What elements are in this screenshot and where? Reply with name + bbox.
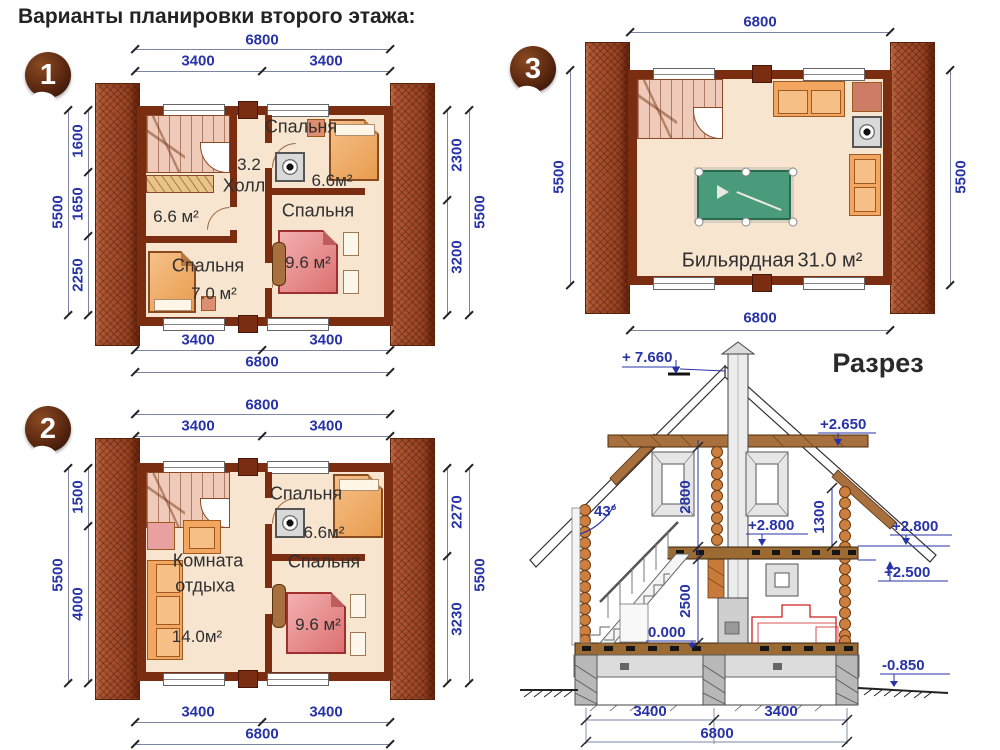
dim-tick (946, 281, 955, 290)
wall-post (752, 274, 772, 292)
dim-tick (386, 368, 395, 377)
room-name: Спальня (282, 201, 354, 222)
dim-tick (84, 311, 93, 320)
room-name: Комната (173, 551, 243, 572)
page-title: Варианты планировки второго этажа: (18, 5, 415, 29)
dim-tick (566, 281, 575, 290)
dim-label: 1500 (70, 480, 87, 513)
dim-line (469, 468, 470, 683)
wall-post (752, 65, 772, 83)
brick-gable-wall (390, 438, 435, 700)
elev-label: +2.500 (884, 564, 930, 581)
cushion (778, 90, 808, 114)
dim-label: 1650 (70, 187, 87, 220)
elev-label: -0.850 (882, 657, 925, 674)
room-name: Спальня (288, 552, 360, 573)
dim-label: 3400 (181, 332, 214, 349)
dim-label: 3400 (309, 418, 342, 435)
dim-tick (465, 679, 474, 688)
stair-winders (638, 80, 677, 138)
dim-label: 1300 (811, 500, 828, 533)
floor-plan-2: 2 6800 3400 3400 5500 1500 4000 2270 323… (35, 398, 500, 750)
armchair (183, 520, 221, 554)
cushion (854, 187, 876, 212)
dim-label: 6800 (245, 354, 278, 371)
partition-wall (265, 288, 272, 317)
pocket (695, 218, 704, 227)
cushion (156, 596, 180, 625)
dim-label: 6800 (245, 726, 278, 743)
dim-tick (465, 311, 474, 320)
dim-line (950, 70, 951, 285)
section-stove (718, 598, 748, 643)
elev-label: +2.650 (820, 416, 866, 433)
armchair (849, 154, 881, 216)
hatched-bench (146, 175, 214, 193)
dim-tick (386, 718, 395, 727)
dim-line (88, 468, 89, 683)
dim-label: 6800 (743, 310, 776, 327)
siding-board (572, 508, 580, 645)
wall-post (238, 670, 258, 688)
dim-line (135, 414, 390, 415)
dim-label: 2270 (449, 495, 466, 528)
window (803, 68, 865, 81)
fireplace-red-outline (752, 605, 838, 643)
wall-post (238, 101, 258, 119)
pillow (339, 479, 379, 491)
wall-niche (766, 564, 798, 596)
plan-2-badge: 2 (25, 406, 71, 452)
cushion (811, 90, 841, 114)
dim-line (88, 110, 89, 315)
dim-tick (886, 326, 895, 335)
door-leaf (272, 584, 286, 628)
dim-label: 5500 (551, 160, 568, 193)
dim-line (135, 372, 390, 373)
dim-label: 3400 (764, 703, 797, 720)
room-area: 3.2 (237, 155, 261, 175)
room-name: Холл (223, 176, 265, 197)
dim-tick (443, 679, 452, 688)
side-table (147, 522, 175, 550)
dim-label: 1600 (70, 124, 87, 157)
dim-tick (386, 410, 395, 419)
elev-label: +2.800 (892, 518, 938, 535)
stove (852, 116, 882, 148)
dim-label: 3400 (633, 703, 666, 720)
window (163, 673, 225, 686)
room-name: Спальня (265, 117, 337, 138)
foundation (574, 655, 859, 705)
cue-line (736, 191, 781, 211)
dim-line (135, 744, 390, 745)
pool-table (697, 170, 791, 220)
dim-label: 5500 (472, 558, 489, 591)
nightstand (343, 232, 359, 256)
elev-label: +2.800 (748, 517, 794, 534)
window (267, 673, 329, 686)
dim-label: 3200 (449, 240, 466, 273)
dim-tick (386, 67, 395, 76)
dim-tick (64, 311, 73, 320)
dim-label: 3400 (181, 53, 214, 70)
cushion (189, 527, 215, 549)
dim-tick (386, 45, 395, 54)
rack-triangle (717, 185, 729, 199)
room-area: 6.6м² (304, 523, 345, 543)
door-leaf (272, 242, 286, 286)
dim-label: 6800 (245, 32, 278, 49)
wall-post (238, 458, 258, 476)
dim-label: 2800 (677, 480, 694, 513)
dim-tick (64, 679, 73, 688)
room-area: 31.0 м² (798, 250, 863, 273)
dim-label: 5500 (953, 160, 970, 193)
pocket (789, 168, 798, 177)
plan-1-badge: 1 (25, 52, 71, 98)
dim-label: 4000 (70, 587, 87, 620)
dim-label: 3400 (309, 704, 342, 721)
partition-wall (265, 168, 272, 263)
brick-gable-wall (890, 42, 935, 314)
dim-label: 6800 (743, 14, 776, 31)
window (267, 318, 329, 331)
room-name: Бильярдная (682, 250, 795, 273)
sofa (773, 81, 845, 117)
dim-tick (84, 679, 93, 688)
elev-label: + 7.660 (622, 349, 672, 366)
window (163, 318, 225, 331)
room-area: 7.0 м² (191, 284, 237, 304)
partition-wall (265, 524, 272, 588)
side-table (852, 82, 882, 112)
partition-wall (146, 236, 237, 243)
window (803, 277, 865, 290)
dim-label: 6800 (245, 397, 278, 414)
floor-plan-1: 1 6800 3400 3400 5500 1600 1650 2250 230… (35, 28, 500, 380)
brick-gable-wall (585, 42, 630, 314)
dim-label: 43° (594, 503, 617, 520)
window (267, 461, 329, 474)
ground-floor-slab (575, 643, 858, 655)
floor-plan-3: 3 6800 5500 5500 6800 (505, 14, 1000, 340)
section-drawing: Разрез + 7.660 +2.650 +2.800 +2.800 +2.5… (520, 340, 1000, 750)
room-name: отдыха (175, 576, 235, 597)
dim-line (630, 330, 890, 331)
nightstand (350, 594, 366, 618)
room-name: Спальня (172, 256, 244, 277)
pocket (695, 168, 704, 177)
nightstand (350, 632, 366, 656)
dim-label: 3400 (181, 418, 214, 435)
plan-3-badge: 3 (510, 46, 556, 92)
dim-label: 6800 (700, 725, 733, 742)
pocket (789, 218, 798, 227)
dim-label: 3230 (449, 602, 466, 635)
stair-winders (147, 473, 185, 527)
dim-label: 3400 (309, 53, 342, 70)
dim-line (570, 70, 571, 285)
room-name: Спальня (270, 484, 342, 505)
room-area: 14.0м² (172, 627, 222, 647)
dim-label: 3400 (309, 332, 342, 349)
pocket (742, 218, 751, 227)
dim-label: 2250 (70, 258, 87, 291)
room-area: 6.6 м² (153, 207, 199, 227)
dim-label: 5500 (472, 195, 489, 228)
partition-wall (265, 614, 272, 672)
elev-label: 0.000 (648, 624, 686, 641)
dim-label: 3400 (181, 704, 214, 721)
brick-gable-wall (390, 83, 435, 346)
stove (275, 152, 305, 182)
dim-line (469, 110, 470, 315)
brick-gable-wall (95, 438, 140, 700)
dim-tick (443, 311, 452, 320)
dim-tick (386, 346, 395, 355)
dim-tick (386, 740, 395, 749)
dim-line (630, 32, 890, 33)
cushion (854, 159, 876, 184)
dim-label: 2500 (677, 584, 694, 617)
nightstand (343, 270, 359, 294)
brick-gable-wall (95, 83, 140, 346)
section-view: Разрез + 7.660 +2.650 +2.800 +2.800 +2.5… (520, 340, 1000, 750)
stair-winders (147, 116, 185, 172)
stove (275, 508, 305, 538)
room-area: 9.6 м² (295, 615, 341, 635)
masonry-column (708, 559, 724, 598)
room-area: 6.6м² (312, 171, 353, 191)
pillow (154, 299, 192, 311)
pocket (742, 168, 751, 177)
room-area: 9.6 м² (285, 253, 331, 273)
drawing-sheet: Варианты планировки второго этажа: 1 680… (0, 0, 1000, 750)
window (267, 104, 329, 117)
dim-line (135, 49, 390, 50)
dim-label: 5500 (50, 558, 67, 591)
dim-label: 5500 (50, 195, 67, 228)
pillow (335, 124, 375, 136)
wall-post (238, 315, 258, 333)
dim-label: 2300 (449, 138, 466, 171)
window (653, 277, 715, 290)
section-title: Разрез (832, 348, 923, 378)
